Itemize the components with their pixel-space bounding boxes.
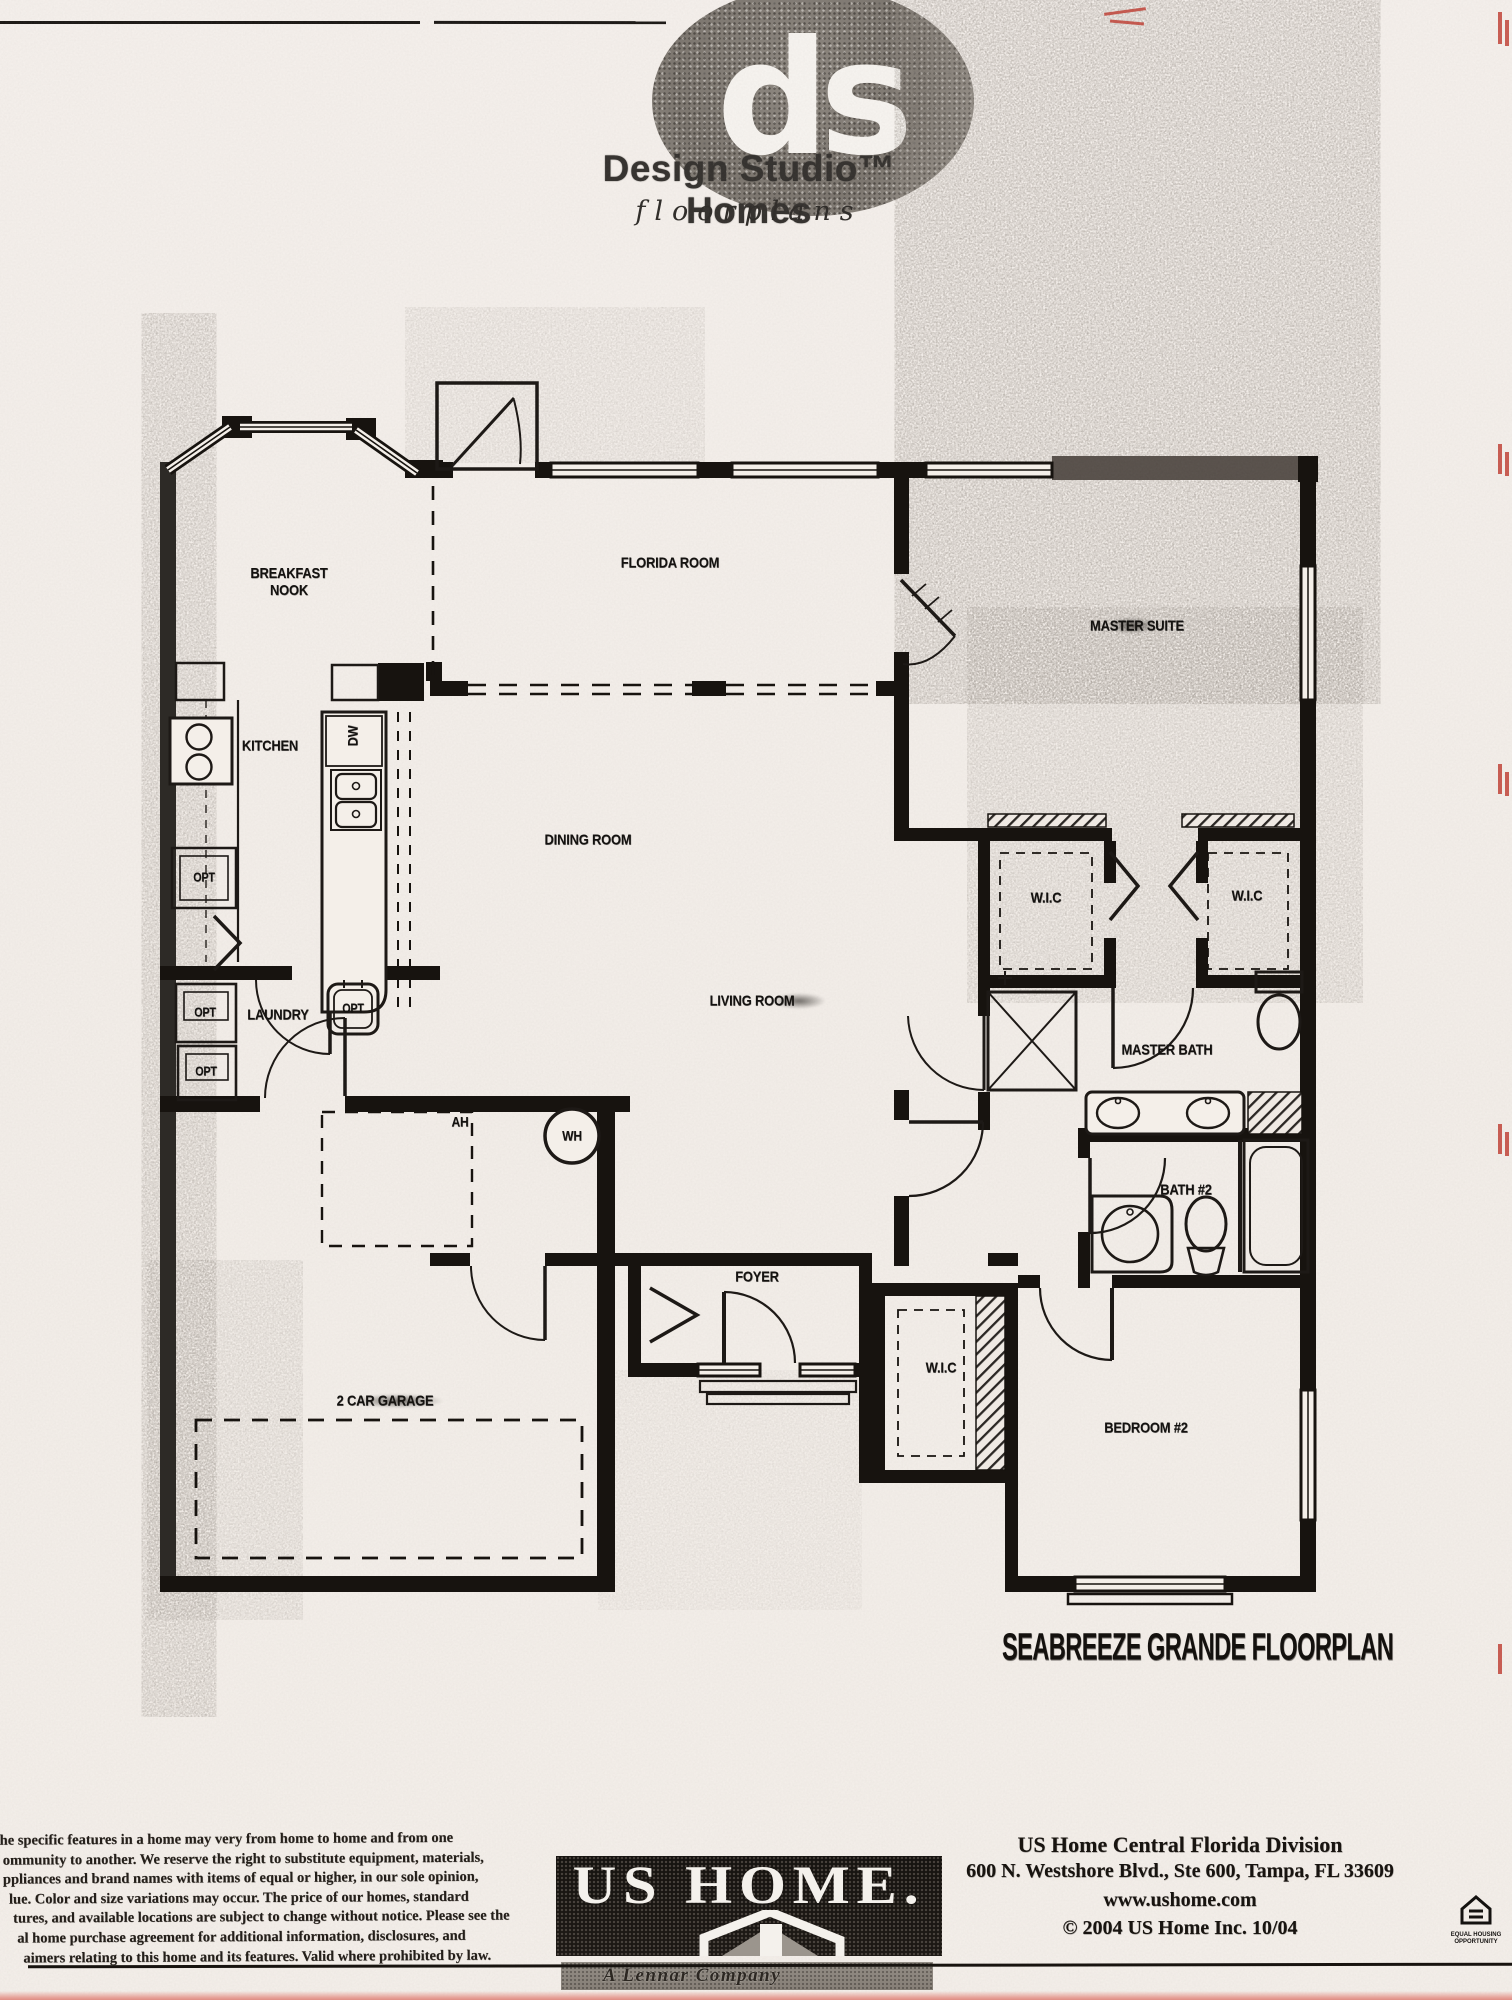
label-opt-dryer: OPT (195, 1066, 217, 1079)
scanned-floorplan-page: ds Design Studio™ Homes floorplans (0, 0, 1512, 2000)
room-label-kitchen: KITCHEN (242, 738, 298, 755)
us-home-logo: US HOME. A Lennar Company (556, 1856, 942, 1994)
room-label-bath-2: BATH #2 (1160, 1182, 1212, 1199)
us-home-wordmark: US HOME. (533, 1856, 965, 1914)
room-label-wic-master-left: W.I.C (1031, 890, 1062, 907)
red-scan-mark (1498, 1124, 1502, 1154)
equal-housing-logo: EQUAL HOUSING OPPORTUNITY (1446, 1894, 1506, 1946)
room-label-florida-room: FLORIDA ROOM (621, 555, 719, 572)
copyright-line: © 2004 US Home Inc. 10/04 (940, 1917, 1420, 1940)
label-opt-pantry: OPT (193, 872, 215, 885)
room-label-garage: 2 CAR GARAGE (337, 1393, 434, 1410)
scanner-edge-tint (0, 1991, 1512, 2000)
room-label-wic-master-right: W.I.C (1232, 888, 1263, 905)
room-label-wic-bedroom2: W.I.C (926, 1360, 957, 1377)
disclaimer-line: al home purchase agreement for additiona… (0, 1926, 538, 1949)
red-scan-mark (1505, 1132, 1509, 1156)
red-scan-mark (1498, 444, 1502, 474)
room-label-master-suite: MASTER SUITE (1090, 618, 1184, 635)
equal-housing-label: EQUAL HOUSING OPPORTUNITY (1446, 1932, 1506, 1946)
us-home-logo-box: US HOME. (556, 1856, 942, 1956)
equal-housing-house-icon (1458, 1894, 1494, 1926)
floorplan-title: SEABREEZE GRANDE FLOORPLAN (1002, 1626, 1393, 1669)
website-url: www.ushome.com (940, 1889, 1420, 1912)
room-label-living-room: LIVING ROOM (710, 993, 795, 1010)
room-label-bedroom-2: BEDROOM #2 (1104, 1420, 1188, 1437)
us-home-roof-icon (556, 1910, 942, 1956)
label-opt-tub: OPT (342, 1003, 364, 1016)
address-block: US Home Central Florida Division 600 N. … (940, 1832, 1420, 1940)
red-scan-mark (1498, 1644, 1502, 1674)
label-air-handler: AH (451, 1116, 468, 1129)
room-label-master-bath: MASTER BATH (1121, 1042, 1212, 1059)
red-scan-mark (1505, 20, 1509, 46)
legal-disclaimer: he specific features in a home may very … (0, 1828, 538, 1968)
room-label-laundry: LAUNDRY (247, 1007, 308, 1024)
division-name: US Home Central Florida Division (940, 1832, 1420, 1858)
label-water-heater: WH (562, 1130, 582, 1143)
room-label-foyer: FOYER (735, 1269, 779, 1286)
red-scan-mark (1498, 764, 1502, 794)
red-scan-mark (1505, 452, 1509, 476)
label-opt-washer: OPT (194, 1007, 216, 1020)
street-address: 600 N. Westshore Blvd., Ste 600, Tampa, … (940, 1860, 1420, 1883)
room-label-dining-room: DINING ROOM (545, 832, 632, 849)
label-dishwasher: DW (345, 726, 362, 747)
red-scan-mark (1505, 772, 1509, 796)
room-label-breakfast-nook: BREAKFAST NOOK (250, 565, 327, 599)
red-scan-mark (1498, 12, 1502, 44)
